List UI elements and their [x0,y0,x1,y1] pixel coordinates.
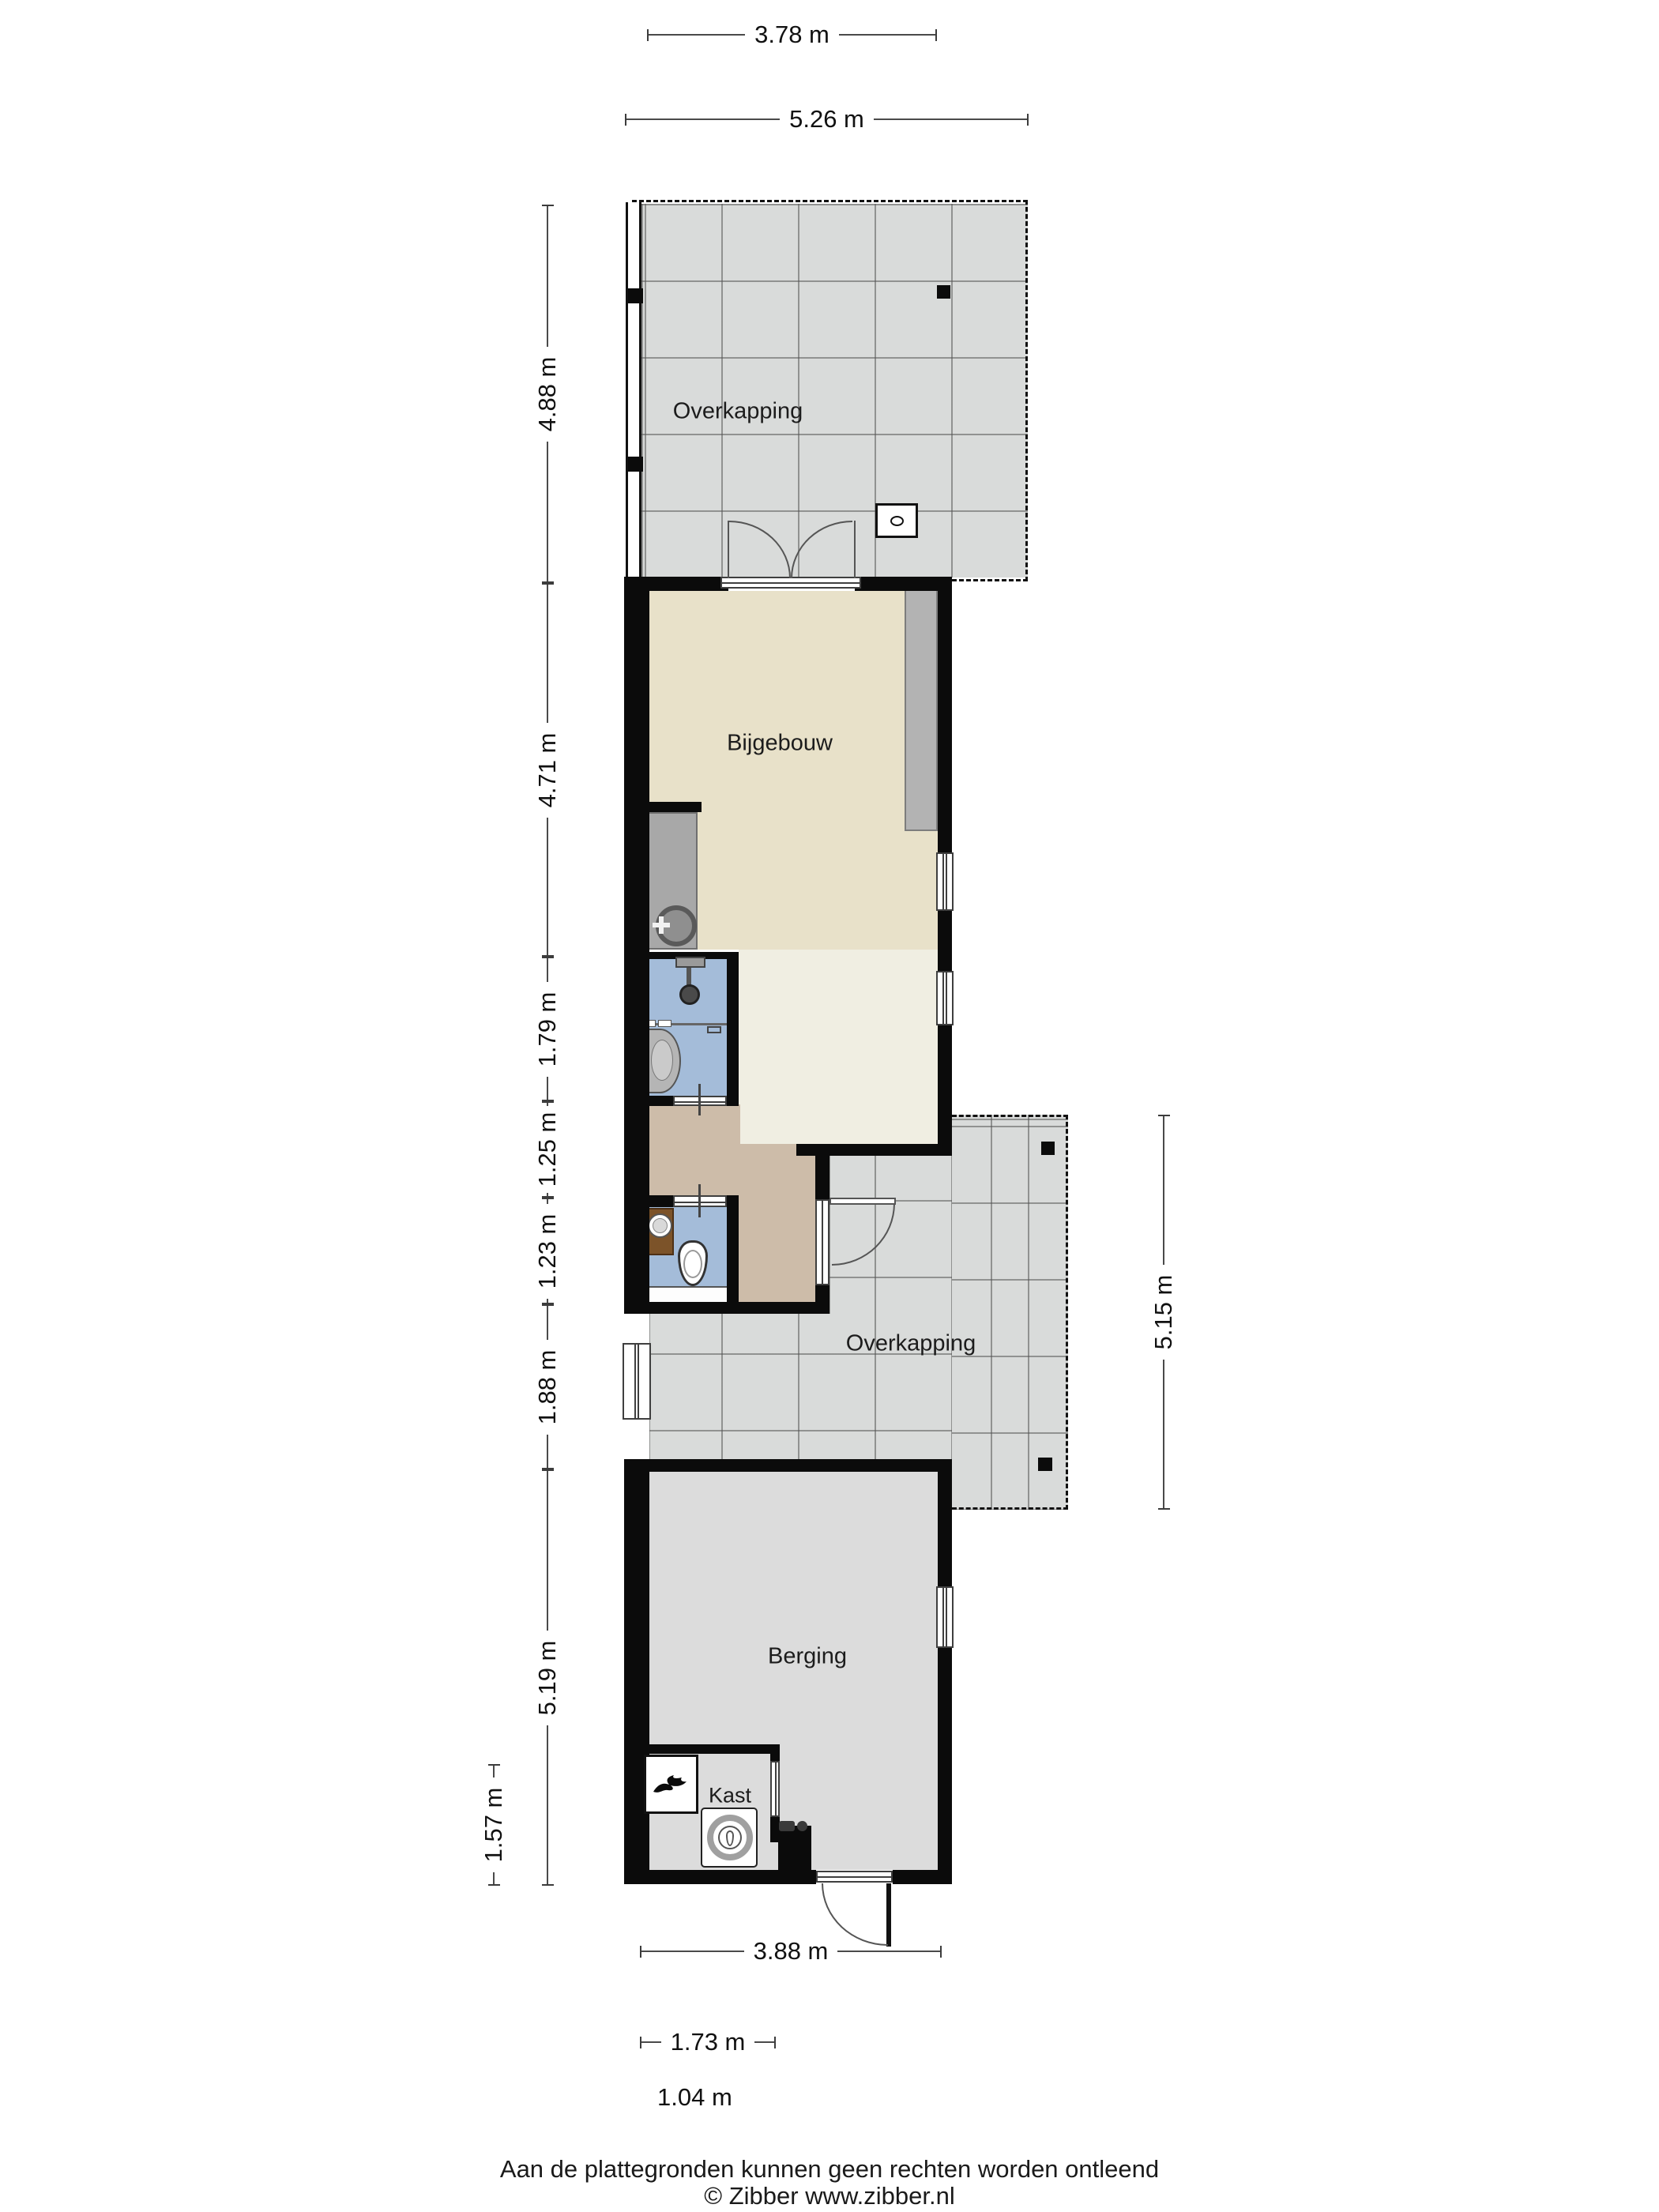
hall-floor-upper [649,1104,740,1144]
berging-right-wall-upper [938,1472,952,1586]
dimension-right-515: 5.15 m [1148,1115,1179,1510]
wall-bottom-right-horizontal [796,1144,952,1156]
wall-left-main [624,577,649,1314]
window-bijgebouw-upper [936,852,954,911]
dimension-left-179: 1.79 m [532,957,563,1101]
room-label-overkapping-top: Overkapping [673,399,803,425]
entry-pier-block [778,1826,811,1870]
bathroom-right-wall [727,952,739,1106]
dimension-bottom-388: 3.88 m [640,1937,942,1966]
room-label-overkapping-side: Overkapping [846,1331,976,1357]
canopy-post [628,288,643,303]
heater-unit [644,1755,698,1814]
floorplan-page: Overkapping Bijgebouw [0,0,1659,2212]
wall-hall-bottom [624,1302,829,1314]
wall-top-left [624,577,728,591]
french-door-leaf-right [854,521,856,578]
partition-handle [658,1020,671,1027]
boiler-unit-icon [875,503,918,538]
window-terrace-left [623,1343,651,1420]
entrance-door-sill [816,1871,893,1883]
room-label-berging: Berging [768,1644,847,1670]
wall-hall-right-upper [815,1156,829,1201]
window-berging-right [936,1586,954,1648]
footer-copyright: © Zibber www.zibber.nl [0,2182,1659,2210]
berging-right-wall-lower [938,1648,952,1884]
wardrobe-cabinet [905,589,938,831]
meter-icon [797,1821,807,1831]
kitchen-faucet-icon [659,916,664,934]
dimension-top-378: 3.78 m [647,21,937,49]
overkapping-top-floor [641,204,1028,577]
terrace-door-frame [815,1199,829,1285]
washbasin-bowl-icon [651,1040,673,1081]
toilet-top-wall [646,1195,673,1207]
berging-bottom-wall-right [893,1870,952,1884]
overkapping-top-dash-east [1025,200,1028,581]
dimension-left-157: 1.57 m [478,1764,510,1886]
soap-tray-icon [707,1026,721,1033]
canopy-post [628,457,643,472]
canopy-post [1038,1458,1052,1471]
dimension-left-123: 1.23 m [532,1198,563,1304]
toilet-window-ledge [649,1286,727,1303]
room-label-kast: Kast [709,1784,751,1808]
bathroom-door-leaf [698,1084,701,1115]
wall-right-upper [938,577,952,853]
window-bijgebouw-lower [936,971,954,1025]
dimension-bottom-173: 1.73 m [640,2028,776,2056]
dimension-left-188: 1.88 m [532,1304,563,1469]
room-label-bijgebouw: Bijgebouw [727,731,833,757]
bijgebouw-floor-light [739,950,938,1144]
shower-mixer-icon [675,957,705,968]
dimension-left-519: 5.19 m [532,1469,563,1886]
french-door-sill [720,577,861,589]
washing-machine-icon [701,1808,758,1868]
dimension-left-488: 4.88 m [532,205,563,583]
overkapping-top-dash-south [952,579,1028,581]
kast-wall-vertical-a [770,1752,780,1761]
boiler-knob-icon [890,516,904,526]
dimension-left-471: 4.71 m [532,583,563,957]
toilet-right-wall [727,1195,739,1303]
toilet-seat-icon [683,1250,702,1278]
meter-icon [779,1821,795,1831]
corner-basin-bowl-icon [653,1218,668,1233]
dimension-left-125: 1.25 m [532,1101,563,1198]
berging-left-wall [624,1472,649,1884]
kast-opening-frame [770,1761,780,1817]
flame-icon [652,1773,688,1796]
wall-right-pier [938,910,952,972]
canopy-post [937,285,950,299]
shower-head-icon [679,984,700,1005]
toilet-door-leaf [698,1184,701,1217]
wall-right-lower [938,1025,952,1144]
dimension-top-526: 5.26 m [625,105,1029,134]
canopy-post [1041,1142,1055,1155]
kitchen-partition-wall [646,802,702,812]
overkapping-top-dash-north [632,200,1028,202]
kast-wall-horizontal [649,1744,780,1754]
overkapping-side-dashed-area [952,1115,1068,1510]
bathroom-bottom-wall [646,1096,673,1106]
berging-bottom-wall-left [624,1870,816,1884]
dimension-bottom-104: 1.04 m [648,2083,728,2112]
footer-disclaimer: Aan de plattegronden kunnen geen rechten… [0,2155,1659,2184]
overkapping-left-fence-wall [626,202,641,578]
berging-top-wall [624,1459,952,1472]
